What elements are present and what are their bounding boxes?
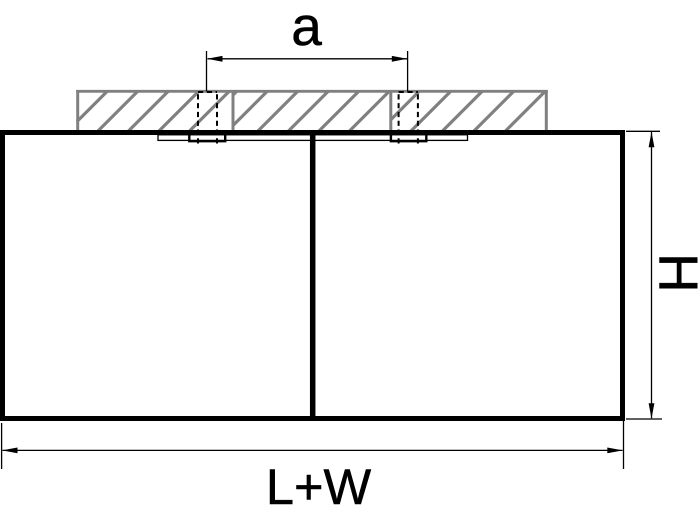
svg-text:L+W: L+W bbox=[266, 458, 372, 515]
svg-text:H: H bbox=[648, 253, 700, 293]
svg-text:a: a bbox=[291, 0, 322, 57]
